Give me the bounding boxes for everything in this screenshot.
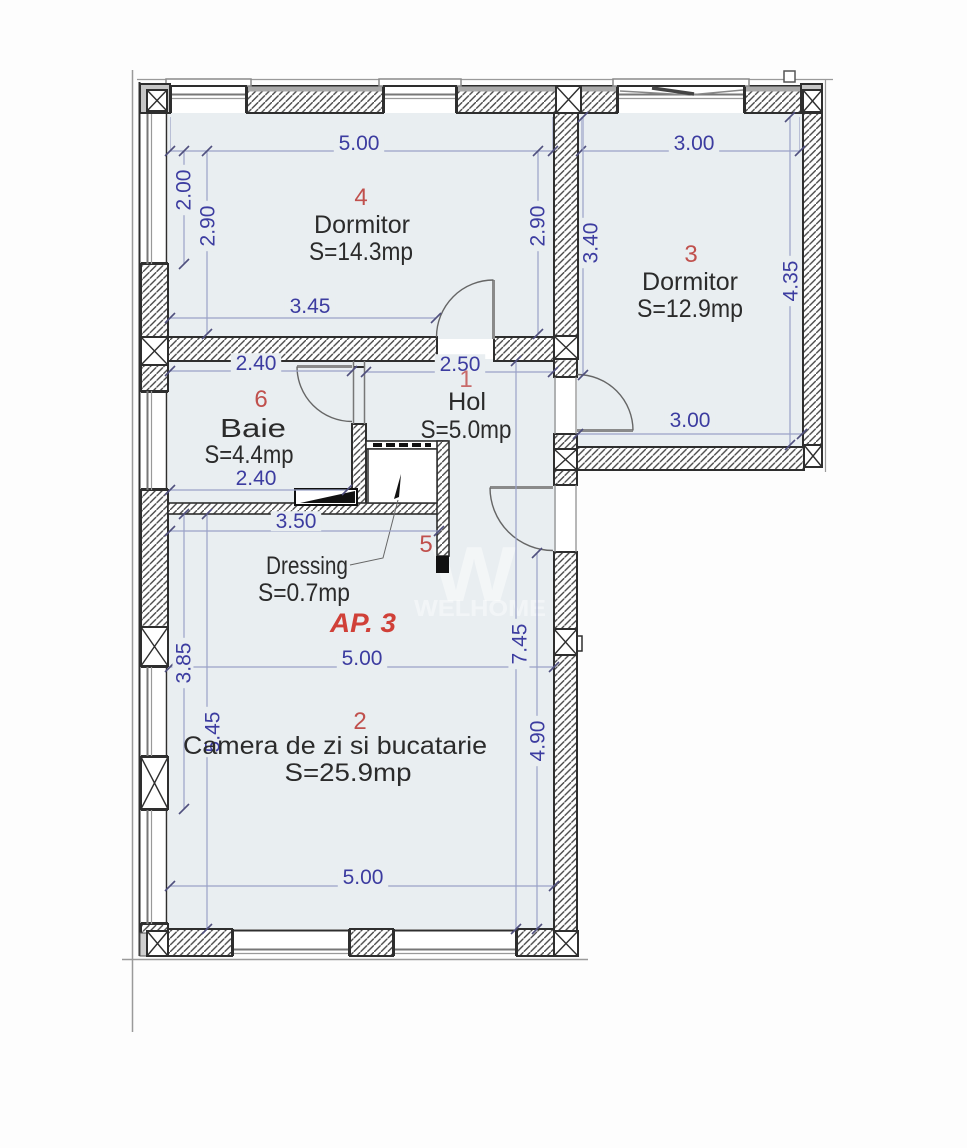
svg-text:3.50: 3.50 [276,510,317,533]
svg-text:2.90: 2.90 [527,206,550,247]
svg-text:Dormitor: Dormitor [642,268,738,296]
svg-text:4.90: 4.90 [527,721,550,762]
svg-text:Camera de zi si bucatarie: Camera de zi si bucatarie [183,732,487,760]
svg-text:5.00: 5.00 [343,866,384,889]
svg-text:3: 3 [684,241,697,268]
svg-text:5.00: 5.00 [342,647,383,670]
svg-text:Baie: Baie [220,413,286,443]
svg-text:S=25.9mp: S=25.9mp [285,759,412,787]
svg-text:Hol: Hol [448,388,486,416]
svg-text:AP. 3: AP. 3 [329,608,396,638]
svg-text:4.35: 4.35 [780,261,803,302]
svg-text:3.00: 3.00 [670,409,711,432]
svg-text:3.85: 3.85 [173,643,196,684]
svg-text:3.45: 3.45 [290,295,331,318]
svg-text:2.90: 2.90 [197,206,220,247]
svg-text:2.40: 2.40 [236,467,277,490]
svg-text:2: 2 [353,708,366,735]
svg-text:4: 4 [354,184,367,211]
svg-text:S=4.4mp: S=4.4mp [205,441,294,469]
svg-text:2.40: 2.40 [236,352,277,375]
svg-text:WELHOME: WELHOME [414,595,546,621]
svg-text:S=5.0mp: S=5.0mp [421,416,512,444]
svg-text:S=12.9mp: S=12.9mp [637,295,743,323]
svg-text:6: 6 [254,386,267,413]
svg-text:7.45: 7.45 [509,624,532,665]
svg-text:5.00: 5.00 [339,132,380,155]
svg-text:3.40: 3.40 [580,223,603,264]
svg-text:2.00: 2.00 [173,170,196,211]
svg-text:5: 5 [419,531,432,558]
svg-text:Dressing: Dressing [266,552,348,580]
svg-text:3.00: 3.00 [674,132,715,155]
svg-text:S=14.3mp: S=14.3mp [309,238,413,266]
svg-text:S=0.7mp: S=0.7mp [258,579,350,607]
svg-text:Dormitor: Dormitor [314,211,410,239]
